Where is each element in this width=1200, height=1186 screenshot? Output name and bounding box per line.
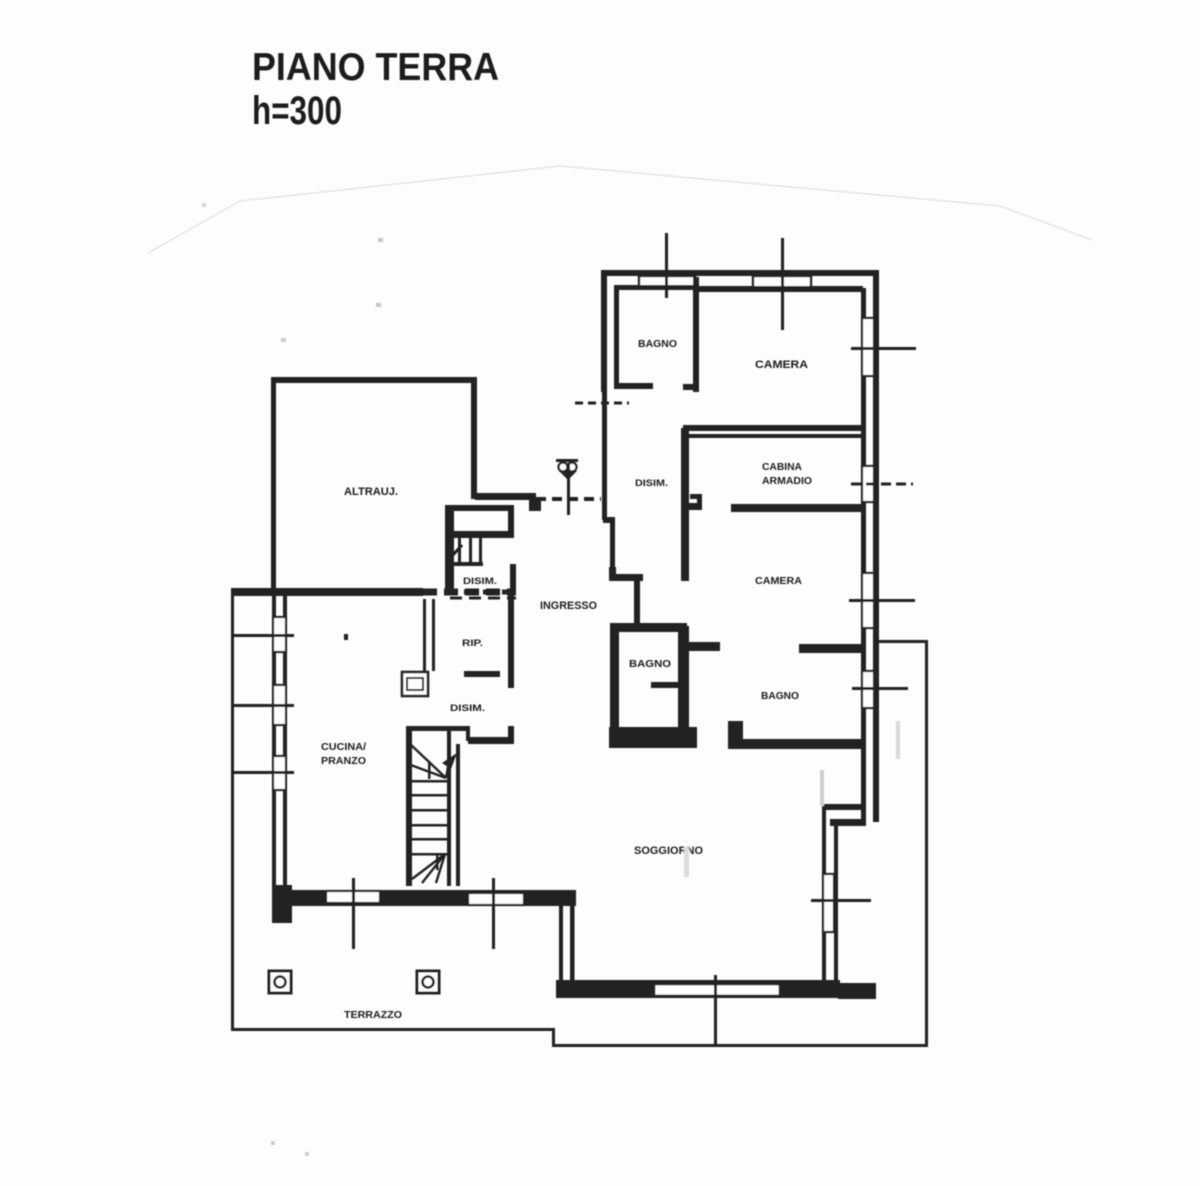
svg-text:PIANO TERRA: PIANO TERRA [252,46,499,89]
svg-text:INGRESSO: INGRESSO [540,600,597,612]
svg-text:CABINA: CABINA [762,461,802,473]
svg-text:DISIM.: DISIM. [463,576,497,587]
svg-text:CAMERA: CAMERA [755,359,808,371]
svg-text:CAMERA: CAMERA [755,575,802,587]
svg-text:DISIM.: DISIM. [635,478,668,489]
svg-text:PRANZO: PRANZO [321,755,366,767]
svg-text:BAGNO: BAGNO [638,338,677,350]
svg-text:BAGNO: BAGNO [761,690,799,702]
svg-text:RIP.: RIP. [462,638,483,649]
svg-text:SOGGIORNO: SOGGIORNO [634,845,703,857]
svg-text:ARMADIO: ARMADIO [762,475,812,487]
svg-text:TERRAZZO: TERRAZZO [344,1009,402,1021]
svg-text:DISIM.: DISIM. [450,703,485,714]
svg-text:h=300: h=300 [252,89,342,133]
svg-text:CUCINA/: CUCINA/ [321,741,366,753]
svg-text:ALTRAUJ.: ALTRAUJ. [344,486,398,498]
svg-text:BAGNO: BAGNO [629,658,671,670]
